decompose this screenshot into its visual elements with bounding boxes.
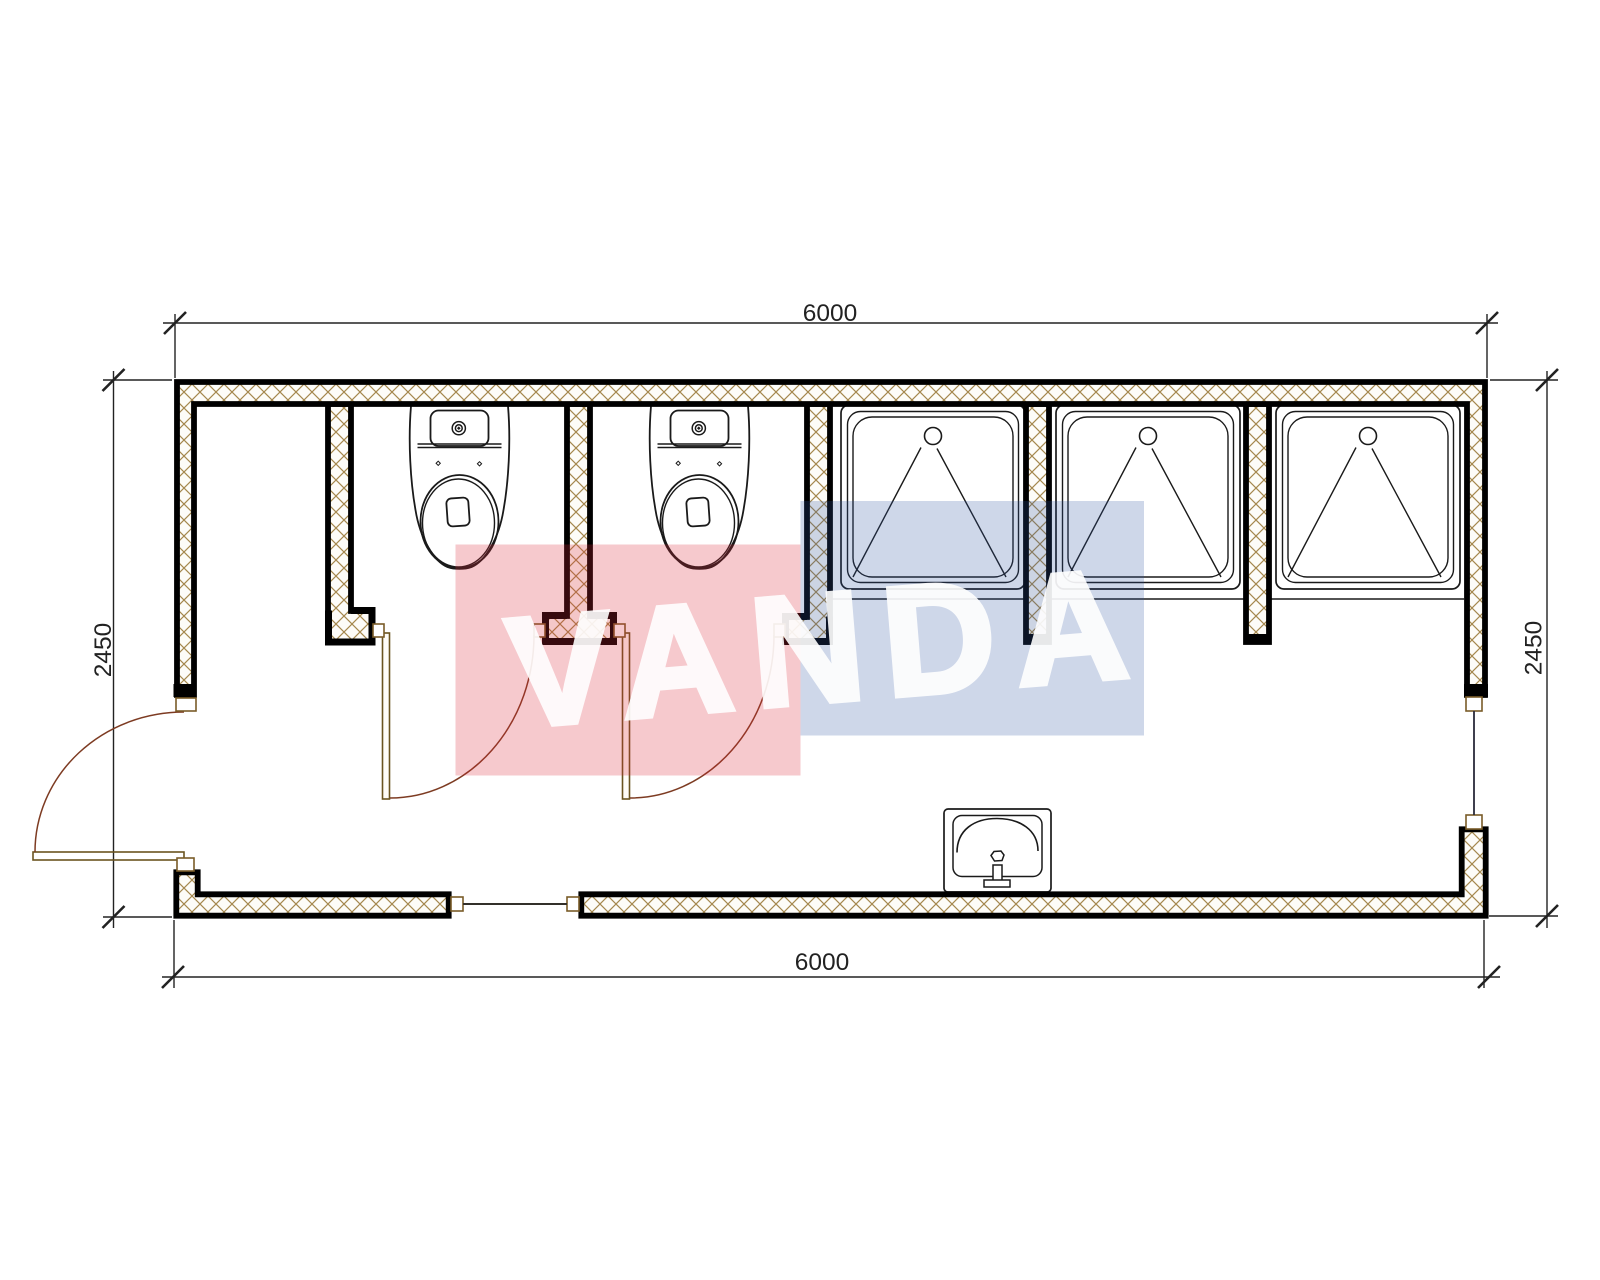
svg-text:6000: 6000 [803, 300, 858, 327]
svg-text:2450: 2450 [1521, 621, 1548, 676]
svg-text:6000: 6000 [795, 949, 850, 976]
svg-text:2450: 2450 [90, 623, 117, 678]
